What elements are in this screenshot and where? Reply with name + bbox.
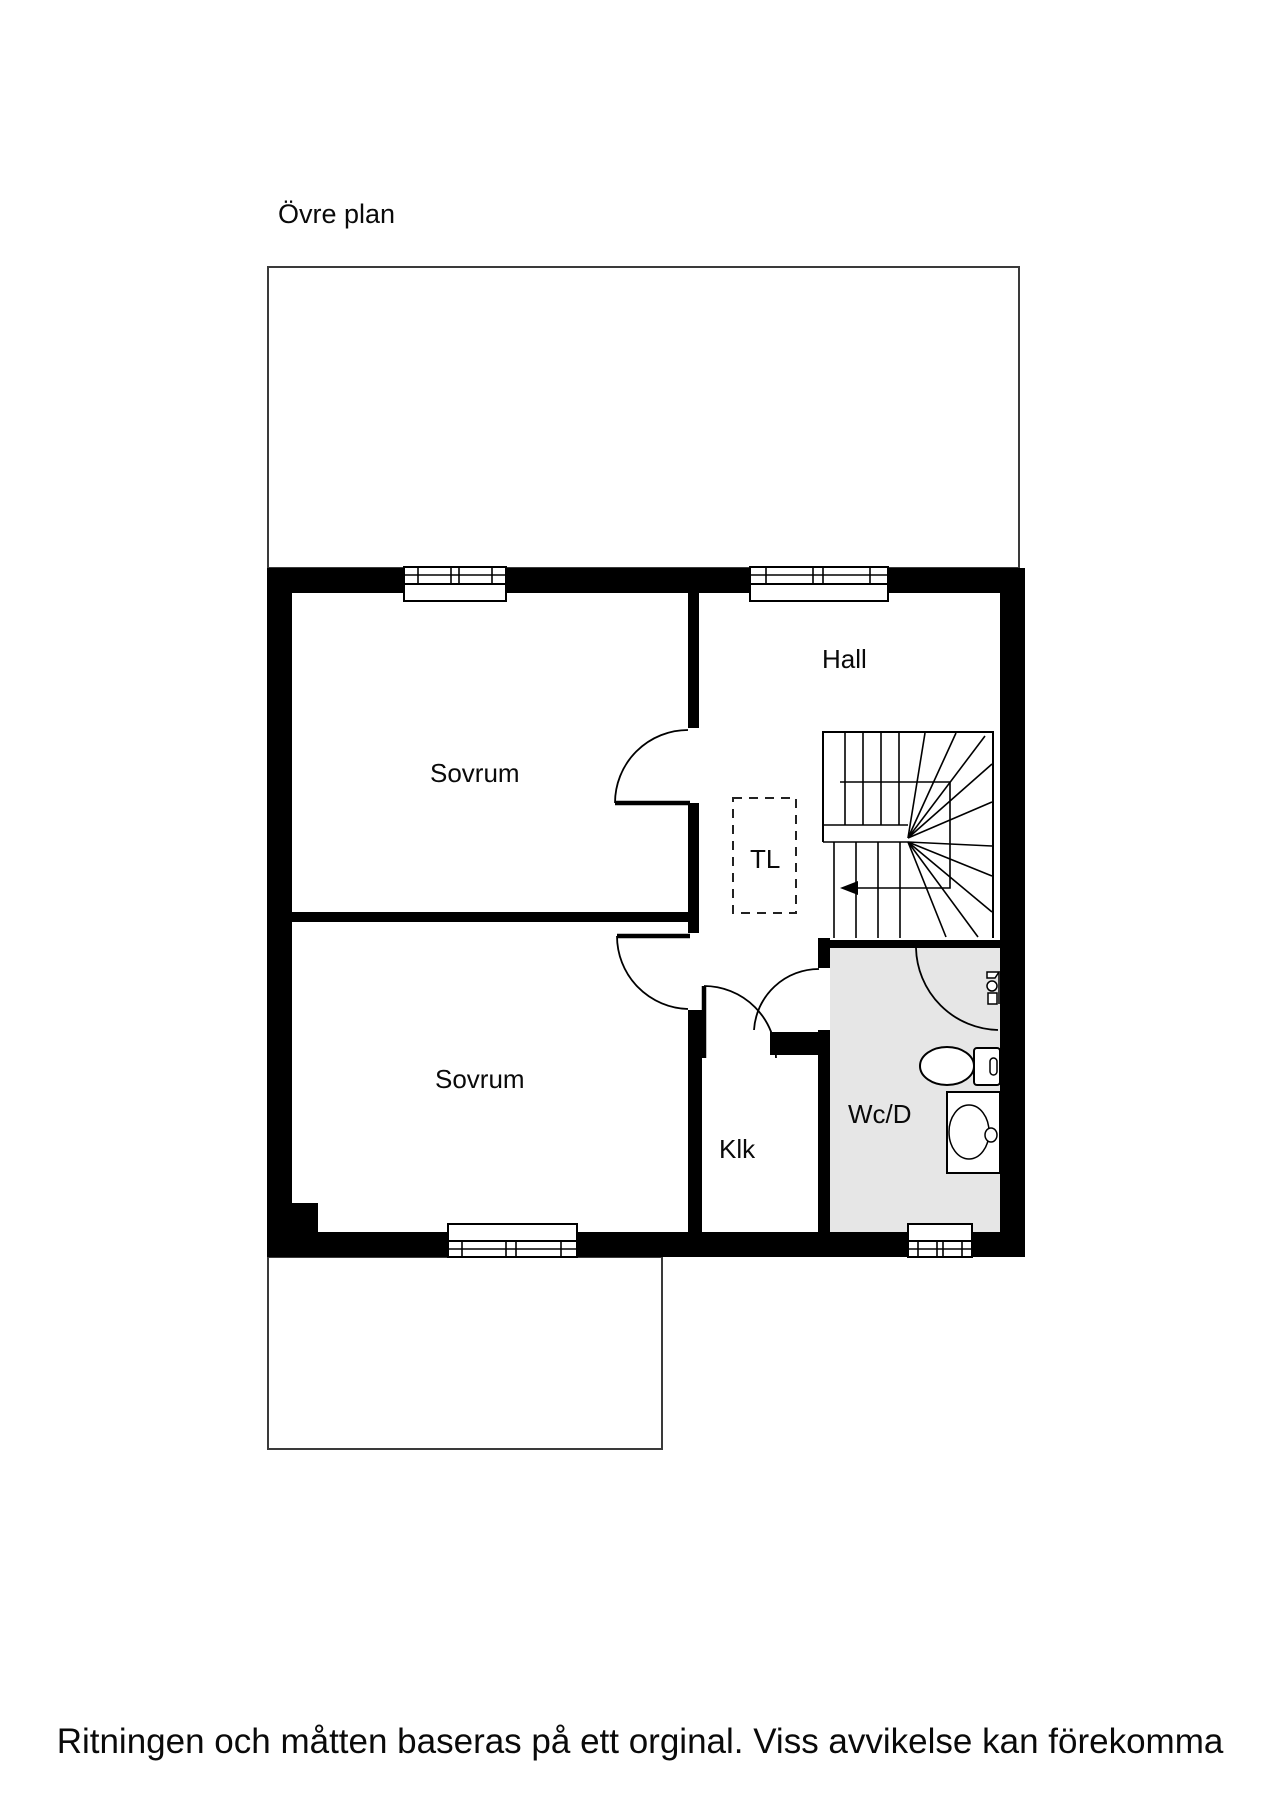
room-label-hall: Hall [822, 646, 867, 673]
balcony-upper-outline [268, 267, 1019, 568]
balcony-lower-outline [268, 1257, 662, 1449]
floorplan-page: Övre plan Sovrum Hall TL Sovrum Klk Wc/D… [0, 0, 1280, 1810]
room-label-klk: Klk [719, 1136, 755, 1163]
room-label-sovrum-1: Sovrum [430, 760, 520, 787]
wet-room-floor [830, 948, 1000, 1232]
staircase-icon [823, 732, 993, 938]
toilet-icon [920, 1047, 1000, 1085]
disclaimer-text: Ritningen och måtten baseras på ett orgi… [0, 1722, 1280, 1762]
wall-step [292, 1203, 318, 1232]
door-wcd [754, 969, 819, 1030]
window-top-right [750, 567, 888, 601]
window-bottom-left [448, 1224, 577, 1257]
room-label-tl: TL [750, 846, 780, 873]
washing-machine-icon [947, 1092, 1000, 1173]
door-sovrum-2 [617, 936, 690, 1009]
room-label-wcd: Wc/D [848, 1101, 912, 1128]
room-label-sovrum-2: Sovrum [435, 1066, 525, 1093]
page-title: Övre plan [278, 200, 395, 228]
window-top-left [404, 567, 506, 601]
floorplan-drawing [0, 0, 1280, 1810]
window-bottom-right [908, 1224, 972, 1257]
door-sovrum-1 [615, 730, 690, 803]
